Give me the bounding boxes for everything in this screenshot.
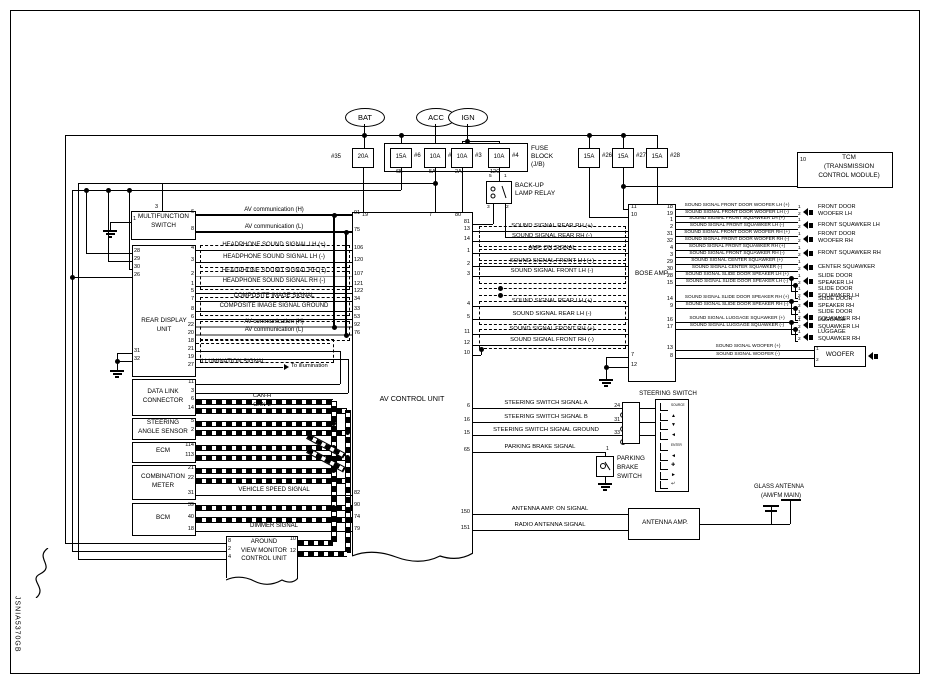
speaker-pin: 1: [798, 260, 801, 265]
av-pin: 76: [354, 331, 360, 337]
fuse-id: #26: [602, 153, 612, 159]
around-view-monitor-label: CONTROL UNIT: [233, 556, 295, 562]
speaker-signal-label: SOUND SIGNAL SLIDE DOOR SPEAKER LH (-): [677, 279, 797, 284]
amp-pin: 32: [643, 239, 673, 245]
speaker-signal-label: SOUND SIGNAL SLIDE DOOR SPEAKER RH (-): [677, 302, 797, 307]
av-unit-torn-edge: [352, 550, 473, 568]
parking-brake-switch-label: BRAKE: [617, 465, 638, 472]
av-pin: 81: [440, 220, 470, 226]
amp-pin: 19: [643, 212, 673, 218]
amp-pin: 18: [643, 205, 673, 211]
av-pin: 11: [440, 330, 470, 336]
speaker-pin: 2: [798, 225, 801, 230]
relay-pin: 2: [506, 205, 509, 210]
junction-dot: [345, 478, 350, 483]
wire: [86, 253, 132, 254]
av-pin: 3: [440, 272, 470, 278]
can-wire: [196, 505, 352, 511]
rdu-pin: 28: [134, 249, 140, 255]
ground-symbol: [604, 385, 608, 386]
wire: [589, 168, 590, 217]
signal-wire: [473, 514, 628, 515]
junction-dot: [789, 320, 794, 325]
signal-label: RADIO ANTENNA SIGNAL: [475, 522, 625, 528]
amp-pin: 13: [643, 346, 673, 352]
wire: [352, 212, 353, 556]
av-pin: 82: [354, 491, 360, 497]
speaker-signal-label: SOUND SIGNAL FRONT DOOR WOOFER RH (-): [677, 237, 797, 242]
mfs-pin: 8: [164, 227, 194, 233]
junction-dot: [345, 517, 350, 522]
steering-switch-element: [660, 422, 668, 430]
power-source: IGN: [448, 108, 488, 127]
amp-pin: 31: [643, 232, 673, 238]
can-wire: [196, 478, 347, 484]
ground-symbol: [115, 376, 119, 377]
component-pin: 114: [164, 443, 194, 449]
signal-label: ANTENNA AMP. ON SIGNAL: [475, 506, 625, 512]
signal-label: STEERING SWITCH SIGNAL B: [471, 414, 621, 420]
av-pin: 13: [440, 227, 470, 233]
fuse-id: #27: [636, 153, 646, 159]
speaker-signal-label: SOUND SIGNAL CENTER SQUAWKER (-): [677, 265, 797, 270]
can-wire: [196, 430, 347, 436]
rdu-pin: 19: [164, 355, 194, 361]
amp-pin: 16: [643, 318, 673, 324]
shield-outline: [479, 329, 626, 349]
component-pin: 31: [164, 491, 194, 497]
speaker-name: LUGGAGE: [818, 318, 846, 324]
steering-button-icon: ▲: [671, 414, 676, 419]
speaker-name: LUGGAGE: [818, 330, 846, 336]
component-pin: 14: [164, 406, 194, 412]
amp-pin: 15: [643, 281, 673, 287]
backup-lamp-relay-label: BACK-UP: [515, 183, 544, 190]
speaker-pin: 2: [798, 281, 801, 286]
speaker-pin: 2: [798, 337, 801, 342]
amp-pin: 14: [643, 297, 673, 303]
fuse-tap-label: 6B: [396, 170, 403, 176]
av-pin: 74: [354, 515, 360, 521]
ground-symbol: [598, 483, 612, 484]
speaker-pin: 1: [798, 330, 801, 335]
rdu-pin: 1: [164, 282, 194, 288]
fuse-amps: 10A: [488, 154, 510, 160]
rdu-pin: 22: [164, 323, 194, 329]
speaker-wire: [676, 329, 798, 330]
speaker-icon: [803, 234, 814, 245]
relay-pin: 1: [504, 174, 507, 179]
speaker-name: FRONT DOOR: [818, 232, 856, 238]
wire: [472, 212, 473, 556]
diagram-code: JSNIA5370GB: [13, 596, 20, 653]
speaker-wire: [676, 308, 798, 309]
steering-button-icon: ◄: [671, 433, 676, 438]
speaker-signal-label: SOUND SIGNAL WOOFER (+): [688, 344, 808, 349]
av-pin: 151: [440, 526, 470, 532]
wire: [589, 217, 628, 218]
wire: [78, 559, 226, 560]
speaker-name: FRONT SQUAWKER RH: [818, 251, 881, 257]
steering-switch-element: [660, 472, 668, 480]
wire: [765, 510, 777, 511]
fuse-amps: 10A: [451, 154, 473, 160]
junction-dot: [498, 293, 503, 298]
speaker-signal-label: SOUND SIGNAL FRONT DOOR WOOFER LH (+): [677, 203, 797, 208]
av-pin: 65: [440, 448, 470, 454]
component-pin: 3: [164, 389, 194, 395]
amp-pin: 3: [643, 253, 673, 259]
amp-pin: 1: [643, 218, 673, 224]
amp-pin: 4: [643, 246, 673, 252]
fuse-block-label: FUSE: [531, 146, 548, 153]
relay-pin: 5: [489, 174, 492, 179]
speaker-pin: 1: [798, 318, 801, 323]
rdu-pin: 2: [164, 272, 194, 278]
speaker-pin: 1: [798, 246, 801, 251]
wire: [763, 505, 779, 506]
shield-outline: [200, 297, 350, 316]
speaker-name: WOOFER LH: [818, 212, 852, 218]
rdu-pin: 21: [164, 347, 194, 353]
signal-label: VEHICLE SPEED SIGNAL: [196, 487, 352, 493]
steering-button-icon: ►: [671, 473, 676, 478]
ground-symbol: [603, 489, 607, 490]
speaker-name: SLIDE DOOR: [818, 310, 853, 316]
wire: [226, 536, 227, 578]
junction-dot: [479, 347, 484, 352]
rdu-pin: 7: [164, 297, 194, 303]
ground-symbol: [113, 373, 122, 374]
fuse-block-label: BLOCK: [531, 154, 553, 161]
wire: [623, 135, 624, 148]
steering-button-icon: ↵: [671, 482, 675, 487]
shield-outline: [200, 321, 350, 341]
av-pin: 75: [354, 228, 360, 234]
amp-pin: 17: [643, 325, 673, 331]
wire: [196, 367, 283, 368]
can-wire: [298, 540, 333, 546]
signal-label: STEERING SWITCH SIGNAL A: [471, 400, 621, 406]
av-pin: 91: [354, 211, 360, 217]
wire: [462, 168, 463, 212]
steering-switch-element: [660, 481, 668, 489]
fuse-amps: 15A: [578, 154, 600, 160]
wire: [640, 408, 655, 409]
speaker-pin: 1: [798, 205, 801, 210]
fuse-id: #4: [512, 153, 519, 159]
speaker-icon: [803, 248, 814, 259]
fuse-amps: 20A: [352, 154, 374, 160]
steering-button-icon: ENTER: [671, 444, 682, 447]
fuse-id: #28: [670, 153, 680, 159]
ground-symbol: [110, 370, 124, 371]
wire: [86, 190, 87, 253]
av-pin: 5: [440, 315, 470, 321]
ground-symbol: [106, 233, 115, 234]
can-wire: [196, 408, 347, 414]
amp-pin: 9: [643, 304, 673, 310]
av-pin: 10: [440, 351, 470, 357]
rdu-pin: 26: [134, 273, 140, 279]
fuse-amps: 15A: [646, 154, 668, 160]
speaker-icon: [803, 262, 814, 273]
ground-symbol: [599, 379, 613, 380]
wire: [196, 495, 352, 496]
can-label: CAN-H: [232, 393, 292, 399]
junction-dot: [332, 213, 337, 218]
fuse-amps: 15A: [390, 154, 412, 160]
rdu-pin: 4: [164, 246, 194, 252]
av-pin: 107: [354, 272, 363, 278]
illumination-arrow: [284, 364, 289, 370]
rdu-pin: 3: [164, 258, 194, 264]
avm-pin: 10: [266, 537, 296, 543]
wire: [606, 367, 628, 368]
speaker-name: FRONT DOOR: [818, 205, 856, 211]
signal-label: STEERING SWITCH SIGNAL GROUND: [471, 427, 621, 433]
woofer-label: WOOFER: [815, 352, 865, 359]
signal-wire: [473, 530, 628, 531]
ground-symbol: [108, 236, 112, 237]
speaker-pin: 2: [798, 253, 801, 258]
shield-outline: [200, 245, 350, 268]
wire: [117, 353, 132, 354]
av-pin: 53: [354, 315, 360, 321]
steering-switch-element: [660, 403, 668, 411]
fuse-id: #3: [475, 153, 482, 159]
illumination-label: ILLUMINATION SIGNAL: [200, 359, 265, 365]
parking-brake-pin: 1: [606, 447, 609, 452]
mfs-pin: 1: [133, 217, 136, 223]
rdu-pin: 18: [164, 339, 194, 345]
rdu-pin: 6: [164, 315, 194, 321]
speaker-wire: [676, 358, 814, 359]
amp-pin: 10: [631, 213, 637, 219]
wire: [108, 261, 132, 262]
component-pin: 22: [164, 476, 194, 482]
wire: [640, 422, 655, 423]
speaker-name: SLIDE DOOR: [818, 287, 853, 293]
rdu-pin: 20: [164, 331, 194, 337]
wire: [196, 531, 352, 532]
av-pin: 150: [440, 510, 470, 516]
speaker-name: SLIDE DOOR: [818, 274, 853, 280]
rdu-pin: 8: [164, 307, 194, 313]
wire: [623, 168, 624, 209]
speaker-signal-label: SOUND SIGNAL FRONT SQUAWKER LH (+): [677, 216, 797, 221]
wire: [435, 183, 436, 212]
speaker-signal-label: SOUND SIGNAL SLIDE DOOR SPEAKER RH (+): [677, 295, 797, 300]
component-pin: 21: [164, 466, 194, 472]
wire: [401, 168, 402, 190]
junction-dot: [345, 430, 350, 435]
signal-label: PARKING BRAKE SIGNAL: [470, 444, 610, 450]
speaker-signal-label: SOUND SIGNAL LUGGAGE SQUAWKER (+): [677, 316, 797, 321]
speaker-name: WOOFER RH: [818, 239, 853, 245]
av-pin: 80: [455, 213, 461, 219]
fuse-id: #6: [414, 153, 421, 159]
junction-dot: [789, 299, 794, 304]
antenna-amp-label: ANTENNA AMP.: [630, 520, 700, 527]
speaker-signal-label: SOUND SIGNAL SLIDE DOOR SPEAKER LH (+): [677, 272, 797, 277]
signal-label: DIMMER SIGNAL: [196, 523, 352, 529]
shield-outline: [479, 301, 626, 325]
speaker-icon: [803, 299, 814, 310]
signal-wire: [196, 231, 352, 233]
junction-dot: [331, 421, 336, 426]
junction-dot: [793, 306, 798, 311]
illumination-note: To illumination: [291, 363, 328, 369]
wire: [65, 135, 66, 543]
speaker-pin: 1: [798, 232, 801, 237]
junction-dot: [793, 283, 798, 288]
junction-dot: [115, 359, 120, 364]
speaker-icon: [803, 332, 814, 343]
fuse-id: #35: [331, 154, 341, 160]
parking-brake-switch-label: PARKING: [617, 456, 645, 463]
av-pin: 33: [354, 307, 360, 313]
av-pin: 79: [354, 527, 360, 533]
tcm-label: (TRANSMISSION: [803, 164, 895, 171]
av-pin: 121: [354, 282, 363, 288]
steering-switch-element: [660, 462, 668, 470]
speaker-pin: 1: [798, 310, 801, 315]
speaker-icon: [803, 207, 814, 218]
speaker-signal-label: SOUND SIGNAL FRONT SQUAWKER LH (-): [677, 223, 797, 228]
glass-antenna-label: GLASS ANTENNA: [734, 484, 824, 490]
component-pin: 2: [164, 428, 194, 434]
component-pin: 6: [164, 397, 194, 403]
av-pin: 12: [440, 341, 470, 347]
avm-pin: 4: [228, 555, 231, 561]
wire: [340, 351, 341, 384]
speaker-pin: 1: [798, 297, 801, 302]
tcm-label: CONTROL MODULE): [803, 173, 895, 180]
speaker-signal-label: SOUND SIGNAL FRONT DOOR WOOFER RH (+): [677, 230, 797, 235]
can-label: CAN-L: [232, 402, 292, 408]
wire: [771, 506, 772, 524]
wire: [623, 186, 797, 187]
wire: [499, 168, 500, 181]
signal-label: AV communication (H): [196, 207, 352, 213]
backup-lamp-relay-label: LAMP RELAY: [515, 191, 555, 198]
avm-pin: 12: [266, 549, 296, 555]
rdu-pin: 32: [134, 357, 140, 363]
wire: [108, 190, 109, 261]
steering-button-icon: SOURCE: [671, 404, 685, 407]
av-pin: 15: [440, 431, 470, 437]
can-wire: [298, 551, 347, 557]
relay-pin: 3: [487, 205, 490, 210]
fuse-amps: 10A: [424, 154, 446, 160]
steering-switch-element: [660, 453, 668, 461]
wire: [196, 384, 340, 385]
av-pin: 2: [440, 262, 470, 268]
speaker-name: SQUAWKER RH: [818, 337, 860, 343]
wire: [606, 357, 628, 358]
tcm-label: TCM: [803, 155, 895, 162]
can-wire: [196, 468, 333, 474]
speaker-pin: 1: [798, 274, 801, 279]
speaker-pin: 1: [798, 287, 801, 292]
wire: [110, 222, 131, 223]
av-pin: 34: [354, 297, 360, 303]
shield-wire: [196, 343, 330, 344]
mfs-pin: 6: [164, 210, 194, 216]
amp-pin: 28: [643, 274, 673, 280]
component-pin: 11: [164, 380, 194, 386]
speaker-signal-label: SOUND SIGNAL CENTER SQUAWKER (+): [677, 258, 797, 263]
wire: [790, 500, 791, 524]
rdu-pin: 29: [134, 257, 140, 263]
speaker-pin: 2: [798, 304, 801, 309]
backup-lamp-relay-symbol: [489, 184, 509, 201]
speaker-name: FRONT SQUAWKER LH: [818, 223, 880, 229]
speaker-pin: 2: [798, 212, 801, 217]
wire: [640, 435, 655, 436]
av-pin: 19: [362, 213, 368, 219]
parking-brake-switch-symbol: [598, 459, 612, 474]
wire: [363, 168, 364, 212]
junction-dot: [331, 505, 336, 510]
av-pin: 16: [440, 418, 470, 424]
avm-pin: 8: [228, 539, 231, 545]
wire: [72, 551, 226, 552]
signal-wire: [473, 452, 605, 453]
speaker-pin: 1: [798, 218, 801, 223]
shield-outline: [479, 249, 626, 261]
av-pin: 90: [354, 503, 360, 509]
shield-outline: [479, 226, 626, 247]
amp-pin: 7: [631, 353, 634, 359]
steering-switch-element: [660, 413, 668, 421]
can-wire: [196, 421, 333, 427]
component-pin: 18: [164, 527, 194, 533]
wire: [364, 124, 365, 148]
wire: [589, 135, 590, 148]
steering-switch-element: [660, 432, 668, 440]
amp-pin: 11: [631, 205, 637, 211]
speaker-signal-label: SOUND SIGNAL LUGGAGE SQUAWKER (-): [677, 323, 797, 328]
fuse-amps: 15A: [612, 154, 634, 160]
junction-dot: [344, 230, 349, 235]
speaker-pin: 1: [816, 347, 819, 352]
speaker-icon: [868, 351, 879, 362]
wire: [348, 359, 349, 393]
wire: [493, 204, 494, 224]
mfs-pin: 3: [155, 205, 158, 211]
amp-pin: 29: [643, 260, 673, 266]
junction-dot: [793, 327, 798, 332]
rdu-pin: 30: [134, 265, 140, 271]
wire: [700, 524, 790, 525]
speaker-signal-label: SOUND SIGNAL FRONT DOOR WOOFER LH (-): [677, 210, 797, 215]
av-pin: 1: [440, 249, 470, 255]
av-pin: 4: [440, 302, 470, 308]
steering-button-icon: ✚: [671, 463, 675, 468]
av-pin: 7: [429, 213, 432, 219]
ground-symbol: [601, 486, 610, 487]
av-pin: 120: [354, 258, 363, 264]
component-label: METER: [132, 483, 194, 490]
speaker-signal-label: SOUND SIGNAL WOOFER (-): [688, 352, 808, 357]
parking-brake-switch-label: SWITCH: [617, 474, 642, 481]
wire: [72, 190, 401, 191]
amp-pin: 2: [643, 225, 673, 231]
rdu-pin: 5: [164, 289, 194, 295]
wire: [781, 499, 801, 500]
